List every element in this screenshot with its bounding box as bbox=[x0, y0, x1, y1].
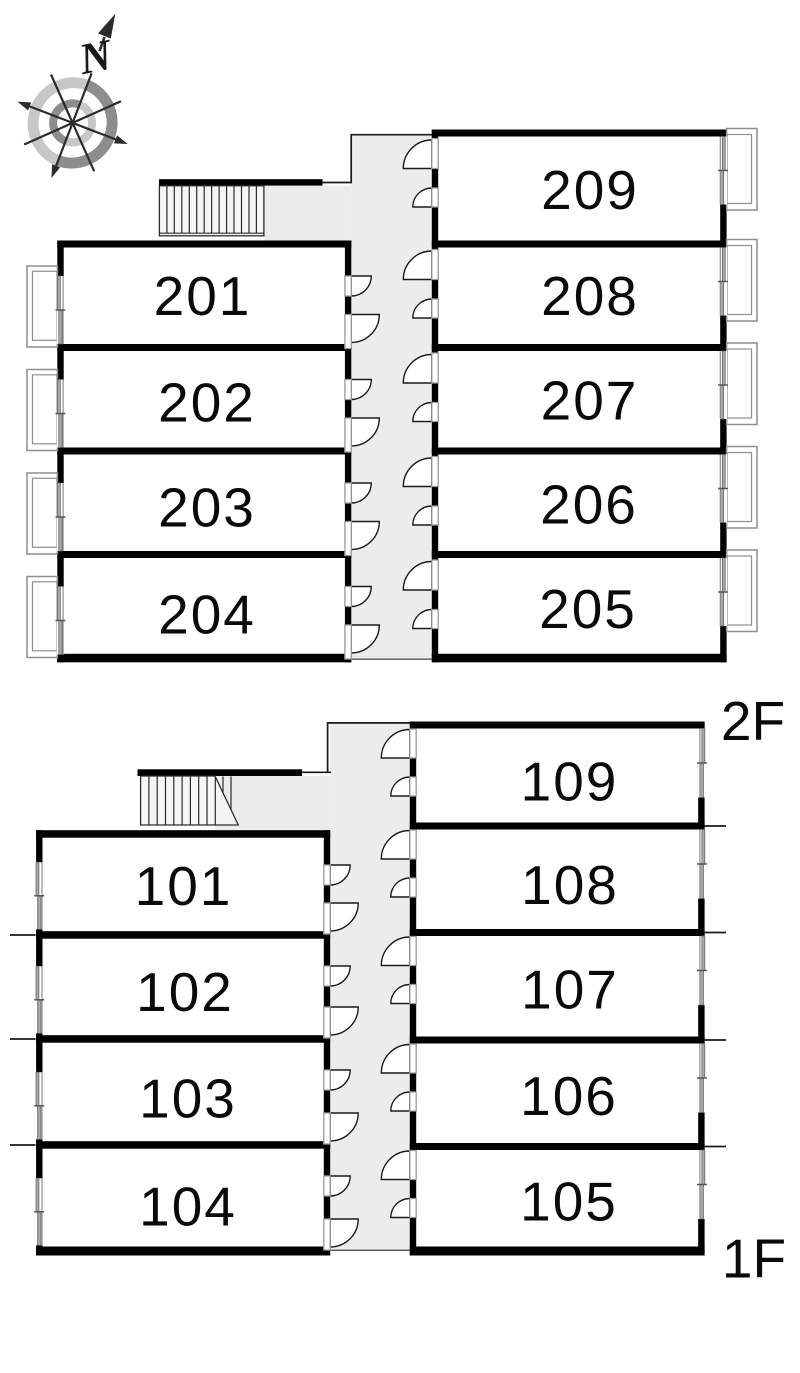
svg-text:101: 101 bbox=[135, 855, 233, 917]
svg-text:202: 202 bbox=[158, 372, 256, 434]
svg-text:203: 203 bbox=[158, 477, 256, 539]
svg-text:108: 108 bbox=[521, 854, 619, 916]
svg-text:102: 102 bbox=[136, 961, 234, 1023]
svg-text:208: 208 bbox=[541, 265, 639, 327]
svg-text:109: 109 bbox=[521, 751, 619, 813]
svg-text:104: 104 bbox=[139, 1176, 237, 1238]
svg-text:204: 204 bbox=[158, 584, 256, 646]
svg-text:1F: 1F bbox=[722, 1228, 786, 1290]
svg-text:106: 106 bbox=[520, 1065, 618, 1127]
svg-text:103: 103 bbox=[139, 1068, 237, 1130]
svg-text:205: 205 bbox=[539, 578, 637, 640]
svg-text:201: 201 bbox=[154, 265, 252, 327]
svg-text:2F: 2F bbox=[721, 690, 785, 752]
svg-text:206: 206 bbox=[540, 474, 638, 536]
svg-text:107: 107 bbox=[521, 959, 619, 1021]
svg-text:105: 105 bbox=[520, 1171, 618, 1233]
svg-text:209: 209 bbox=[541, 159, 639, 221]
svg-text:207: 207 bbox=[541, 370, 639, 432]
